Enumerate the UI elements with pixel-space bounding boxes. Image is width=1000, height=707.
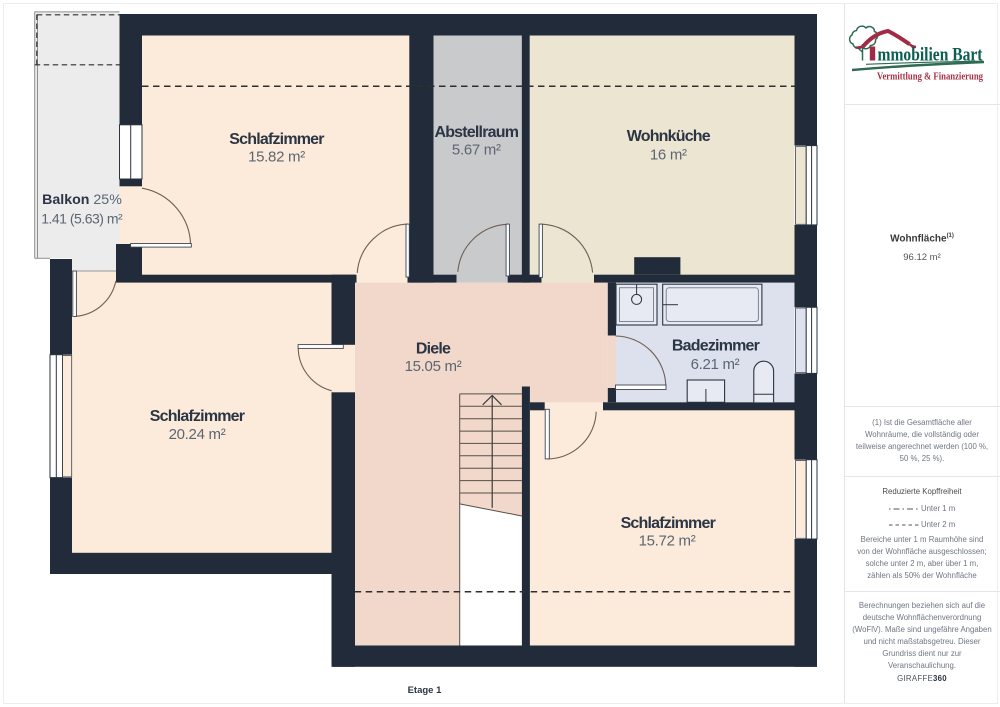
svg-text:6.21 m²: 6.21 m² xyxy=(691,356,740,373)
svg-text:Schlafzimmer: Schlafzimmer xyxy=(150,408,245,425)
svg-text:15.05 m²: 15.05 m² xyxy=(405,358,462,375)
svg-text:Etage 1: Etage 1 xyxy=(408,685,443,696)
svg-text:Schlafzimmer: Schlafzimmer xyxy=(621,515,716,532)
svg-text:20.24 m²: 20.24 m² xyxy=(169,426,226,443)
svg-text:16 m²: 16 m² xyxy=(650,146,687,163)
svg-text:15.82 m²: 15.82 m² xyxy=(248,149,305,166)
svg-text:Wohnküche: Wohnküche xyxy=(627,128,711,145)
svg-text:Abstellraum: Abstellraum xyxy=(434,124,518,141)
svg-text:Vermittlung & Finanzierung: Vermittlung & Finanzierung xyxy=(877,72,983,83)
svg-text:Schlafzimmer: Schlafzimmer xyxy=(229,131,324,148)
svg-text:Badezimmer: Badezimmer xyxy=(672,338,760,355)
svg-text:Diele: Diele xyxy=(416,340,451,357)
svg-text:15.72 m²: 15.72 m² xyxy=(639,533,696,550)
svg-text:1.41 (5.63) m²: 1.41 (5.63) m² xyxy=(41,211,123,227)
svg-text:5.67 m²: 5.67 m² xyxy=(452,142,501,159)
svg-text:Balkon 25%: Balkon 25% xyxy=(42,192,122,208)
